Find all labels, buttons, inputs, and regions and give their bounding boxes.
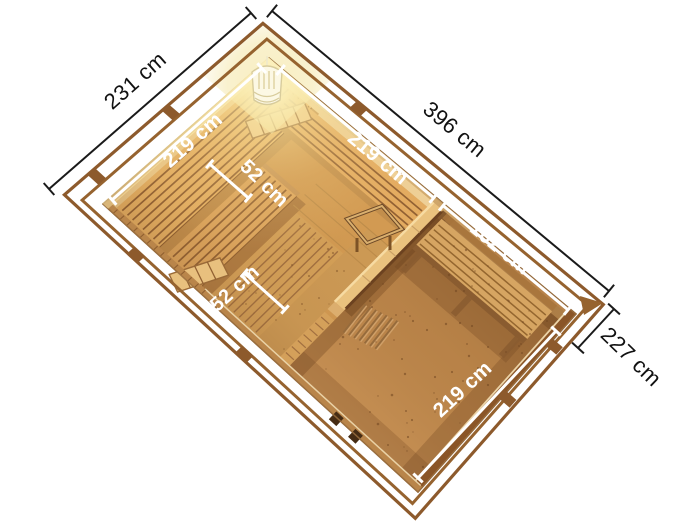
svg-text:231 cm: 231 cm — [99, 47, 171, 115]
svg-text:227 cm: 227 cm — [596, 322, 667, 391]
svg-text:396 cm: 396 cm — [418, 96, 491, 162]
